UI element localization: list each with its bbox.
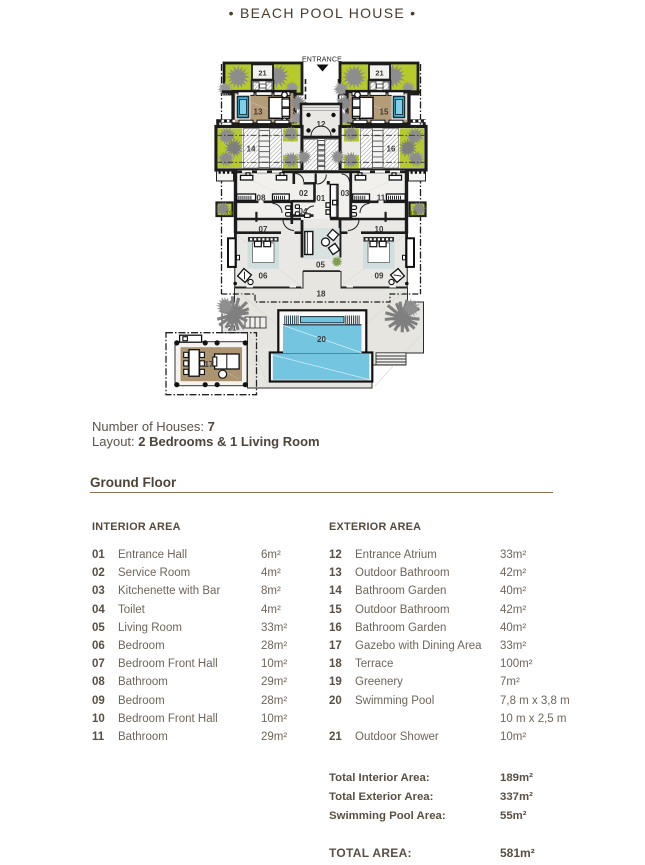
svg-text:03: 03: [340, 189, 349, 198]
svg-text:02: 02: [299, 189, 308, 198]
svg-text:19: 19: [225, 211, 233, 218]
svg-text:08: 08: [257, 194, 266, 203]
svg-text:20: 20: [317, 335, 326, 344]
svg-text:01: 01: [316, 194, 325, 203]
svg-text:17: 17: [205, 360, 214, 369]
svg-text:16: 16: [387, 145, 396, 154]
svg-text:12: 12: [317, 120, 326, 129]
svg-text:13: 13: [254, 108, 263, 117]
svg-text:18: 18: [317, 290, 326, 299]
svg-text:ENTRANCE: ENTRANCE: [302, 57, 342, 64]
svg-text:05: 05: [316, 261, 325, 270]
svg-text:04: 04: [299, 207, 308, 216]
svg-text:06: 06: [259, 272, 268, 281]
svg-text:21: 21: [258, 69, 266, 78]
svg-text:15: 15: [380, 108, 389, 117]
svg-text:11: 11: [377, 194, 386, 203]
svg-text:19: 19: [409, 211, 417, 218]
svg-text:14: 14: [247, 145, 256, 154]
svg-text:09: 09: [375, 272, 384, 281]
svg-text:21: 21: [375, 69, 383, 78]
